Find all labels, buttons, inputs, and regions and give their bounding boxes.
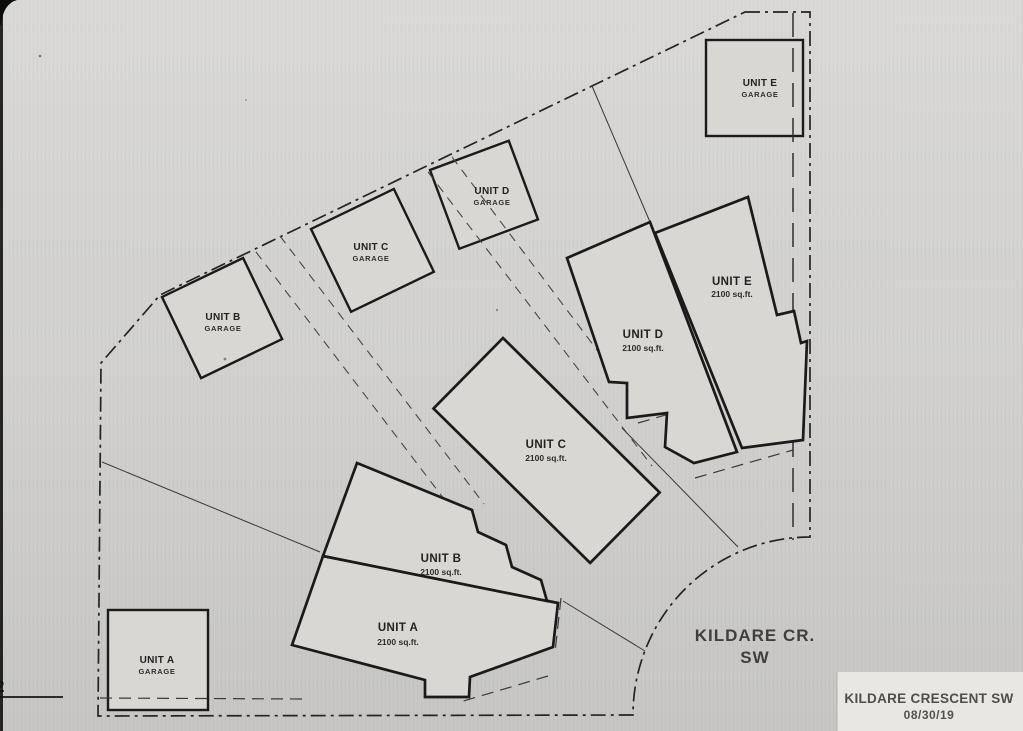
street-name-line1: KILDARE CR. [695, 626, 816, 645]
scan-edge-strip [0, 0, 3, 731]
garage-b-sublabel: GARAGE [204, 324, 241, 333]
unit-c-area: 2100 sq.ft. [525, 453, 567, 463]
title-block-date: 08/30/19 [904, 708, 955, 722]
garage-b-label: UNIT B [205, 312, 240, 323]
garage-a-label: UNIT A [140, 655, 175, 666]
garage-c-sublabel: GARAGE [352, 254, 389, 263]
unit-e-label: UNIT E [712, 276, 752, 288]
scan-speck-3 [496, 309, 498, 311]
street-name-line2: SW [740, 648, 769, 667]
scan-speck-1 [39, 55, 42, 58]
garage-d-label: UNIT D [474, 186, 509, 197]
site-plan-drawing: UNIT A GARAGE UNIT B GARAGE UNIT C GARAG… [0, 0, 1023, 731]
unit-a-label: UNIT A [378, 622, 418, 634]
garage-e-label: UNIT E [743, 78, 778, 89]
unit-c-label: UNIT C [526, 439, 567, 451]
title-block-title: KILDARE CRESCENT SW [844, 691, 1013, 706]
garage-d-sublabel: GARAGE [473, 198, 510, 207]
garage-e-sublabel: GARAGE [741, 90, 778, 99]
site-plan-page: UNIT A GARAGE UNIT B GARAGE UNIT C GARAG… [0, 0, 1023, 731]
unit-b-area: 2100 sq.ft. [420, 567, 462, 577]
scan-speck-4 [245, 99, 247, 101]
unit-d-area: 2100 sq.ft. [622, 343, 664, 353]
unit-a-area: 2100 sq.ft. [377, 637, 419, 647]
garage-a-sublabel: GARAGE [138, 667, 175, 676]
scan-speck-2 [224, 358, 227, 361]
unit-e-area: 2100 sq.ft. [711, 289, 753, 299]
unit-d-label: UNIT D [623, 329, 664, 341]
unit-b-label: UNIT B [421, 553, 462, 565]
garage-c-label: UNIT C [353, 242, 388, 253]
